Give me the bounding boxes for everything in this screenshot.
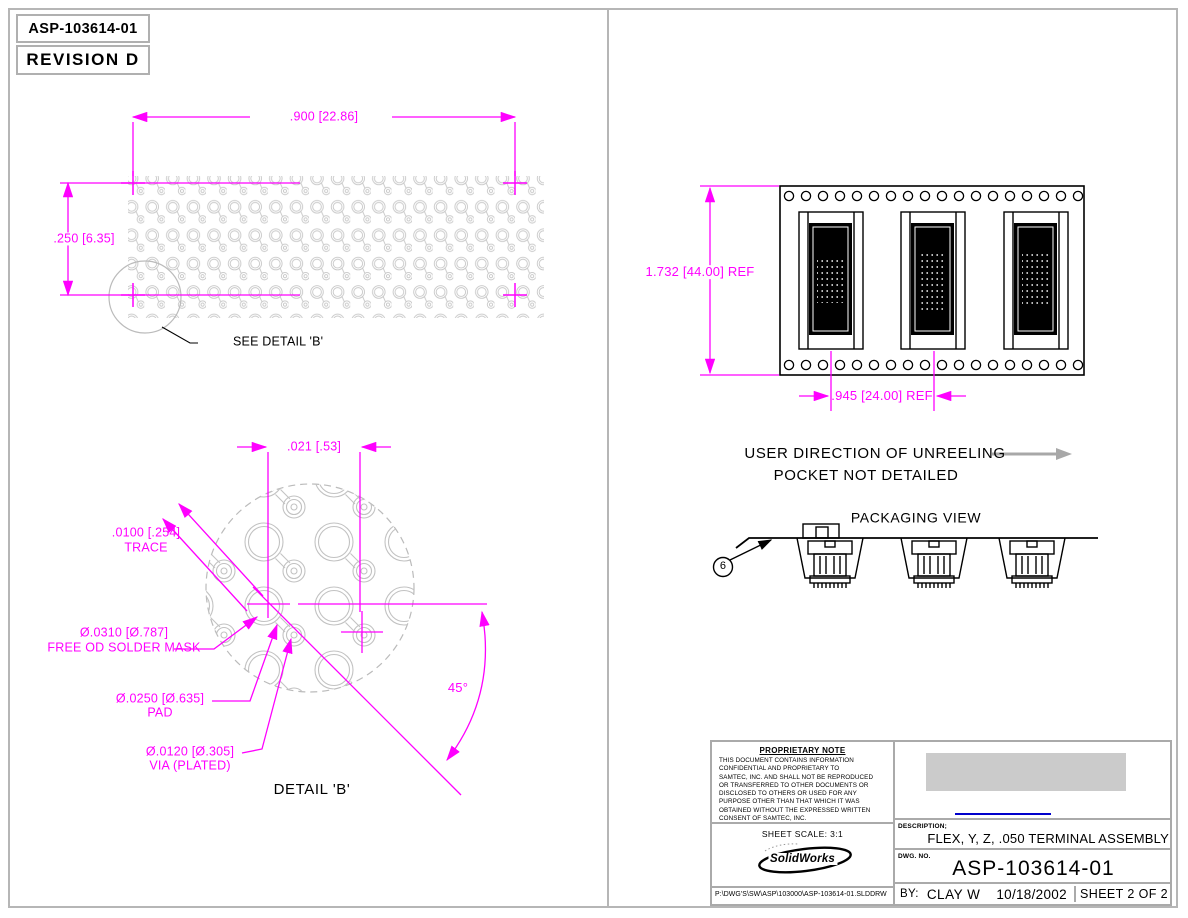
balloon-6-number: 6 [720,561,726,573]
date-value: 10/18/2002 [996,887,1067,902]
revision-box: REVISION D [16,45,150,75]
description-value: FLEX, Y, Z, .050 TERMINAL ASSEMBLY [927,831,1169,846]
packaging-side-view-drawing [714,524,1099,588]
dim-angle: 45° [448,681,468,695]
dim-via: Ø.0120 [Ø.305] [146,745,234,758]
connector-bodies [809,223,1057,335]
tape-pockets [799,212,1068,349]
title-block: PROPRIETARY NOTE THIS DOCUMENT CONTAINS … [710,740,1172,906]
title-block-right: DESCRIPTION; FLEX, Y, Z, .050 TERMINAL A… [895,742,1172,904]
title-block-logo-area [895,742,1172,820]
blue-underline [955,813,1051,815]
dwg-no-row: DWG. NO. ASP-103614-01 [895,852,1172,884]
packaging-view-title: PACKAGING VIEW [851,511,981,526]
proprietary-note-text: THIS DOCUMENT CONTAINS INFORMATIONCONFID… [719,757,886,823]
packaging-pocket [797,524,863,588]
scale-and-logo-cell: SHEET SCALE: 3:1 SolidWorks [712,826,893,884]
dim-trace-label: TRACE [124,541,167,554]
detail-b-title: DETAIL 'B' [274,782,351,798]
by-name: CLAY W [927,887,981,902]
pocket-note: POCKET NOT DETAILED [774,468,959,484]
by-cell: BY: CLAY W 10/18/2002 [895,886,1076,902]
sheet-scale: SHEET SCALE: 3:1 [712,826,893,839]
packaging-pocket [999,538,1065,588]
dim-via-label: VIA (PLATED) [149,759,230,772]
dim-solder-mask: Ø.0310 [Ø.787] [80,626,168,639]
file-path: P:\DWG'S\SW\ASP\103000\ASP-103614-01.SLD… [712,886,893,902]
packaging-pocket [901,538,967,588]
sheet-number-cell: SHEET 2 OF 2 [1076,886,1172,902]
title-block-left: PROPRIETARY NOTE THIS DOCUMENT CONTAINS … [712,742,895,904]
dim-array-height: .250 [6.35] [49,232,118,245]
redacted-logo-block [926,753,1126,791]
solidworks-logo-text: SolidWorks [768,853,837,865]
dim-tape-pitch: .945 [24.00] REF [831,389,932,403]
dim-pitch: .021 [.53] [287,440,341,453]
proprietary-note: PROPRIETARY NOTE THIS DOCUMENT CONTAINS … [712,742,893,824]
dim-pad-label: PAD [147,706,172,719]
dim-array-width: .900 [22.86] [286,110,362,123]
pad-array-drawing [60,117,544,343]
dim-solder-mask-label: FREE OD SOLDER MASK [47,641,200,654]
dim-pad: Ø.0250 [Ø.635] [116,692,204,705]
dwg-no-value: ASP-103614-01 [895,857,1172,881]
tape-top-view-drawing [700,186,1084,411]
detail-b-pads [175,459,515,710]
dim-tape-height: 1.732 [44.00] REF [642,265,759,279]
proprietary-note-title: PROPRIETARY NOTE [719,746,886,755]
see-detail-note: SEE DETAIL 'B' [233,335,323,348]
description-row: DESCRIPTION; FLEX, Y, Z, .050 TERMINAL A… [895,822,1172,850]
by-row: BY: CLAY W 10/18/2002 SHEET 2 OF 2 [895,886,1172,902]
by-label: BY: [900,888,919,900]
part-number-box: ASP-103614-01 [16,14,150,43]
detail-b-boundary-circle [206,484,414,692]
detail-b-drawing [163,447,515,795]
unreeling-note: USER DIRECTION OF UNREELING [744,446,1005,462]
description-label: DESCRIPTION; [898,823,947,830]
detail-b-leader [162,327,198,343]
solidworks-logo: SolidWorks [743,841,863,877]
dim-trace: .0100 [.254] [112,526,180,539]
